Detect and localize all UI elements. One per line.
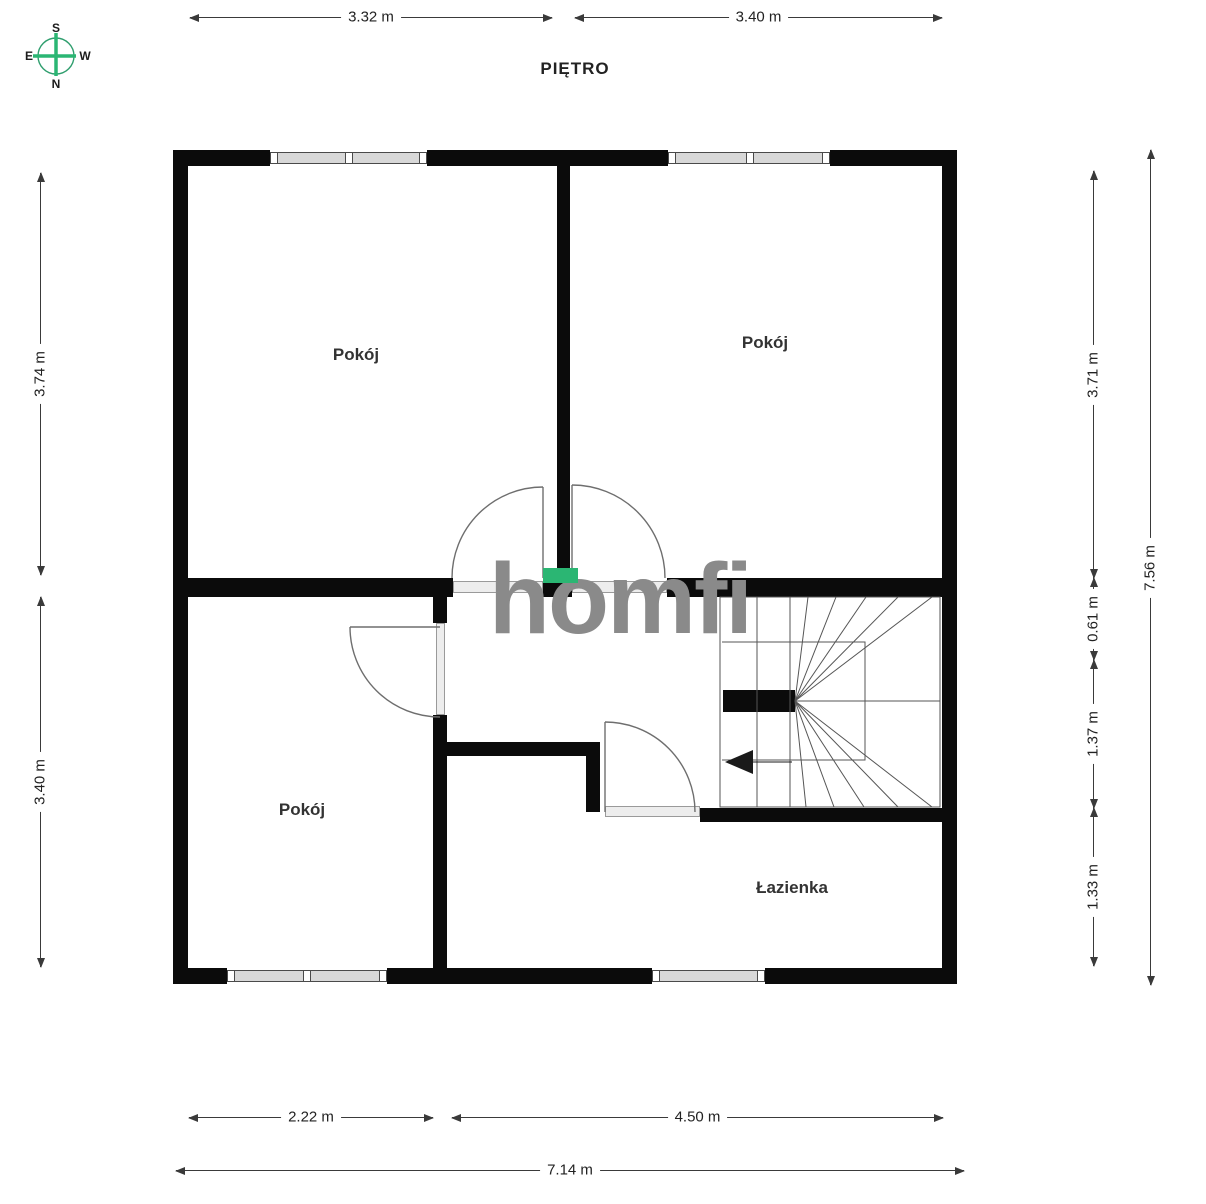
room-label-pokoj-bottom-left: Pokój xyxy=(279,800,325,820)
arrowhead-up-icon xyxy=(37,172,45,182)
dimension-bottom-2: 4.50 m xyxy=(452,1117,943,1118)
wall-below-stairs xyxy=(700,808,942,822)
window-mullion xyxy=(419,152,427,164)
arrowhead-down-icon xyxy=(1147,976,1155,986)
window-bottom-right xyxy=(652,970,765,982)
arrowhead-right-icon xyxy=(933,14,943,22)
dimension-left-2: 3.40 m xyxy=(40,597,41,967)
arrowhead-left-icon xyxy=(175,1167,185,1175)
arrowhead-down-icon xyxy=(37,958,45,968)
wall-segment-bottom-a xyxy=(173,968,227,984)
wall-segment-top-c xyxy=(830,150,957,166)
wall-segment-bottom-b xyxy=(387,968,652,984)
compass-label-left: E xyxy=(25,49,33,63)
compass-label-right: W xyxy=(79,49,90,63)
wall-center-vertical xyxy=(557,166,570,578)
window-mullion xyxy=(668,152,676,164)
room-label-pokoj-top-right: Pokój xyxy=(742,333,788,353)
arrowhead-up-icon xyxy=(1090,807,1098,817)
dimension-bottom-1: 2.22 m xyxy=(189,1117,433,1118)
room-label-lazienka: Łazienka xyxy=(756,878,828,898)
dimension-right-4: 1.33 m xyxy=(1093,808,1094,966)
dimension-label: 2.22 m xyxy=(281,1109,341,1128)
dimension-right-2: 0.61 m xyxy=(1093,578,1094,660)
dimension-label: 1.37 m xyxy=(1085,704,1104,764)
arrowhead-left-icon xyxy=(574,14,584,22)
arrowhead-up-icon xyxy=(1090,577,1098,587)
arrowhead-right-icon xyxy=(424,1114,434,1122)
wall-segment-top-b xyxy=(427,150,668,166)
wall-exterior-left xyxy=(173,150,188,984)
dimension-right-1: 3.71 m xyxy=(1093,171,1094,578)
dimension-left-1: 3.74 m xyxy=(40,173,41,575)
door-threshold-lower-room xyxy=(436,623,445,715)
dimension-label: 7.14 m xyxy=(540,1162,600,1181)
window-mullion xyxy=(822,152,830,164)
wall-hall-vertical-a xyxy=(433,597,447,623)
stairs-direction-arrow-icon xyxy=(725,750,753,774)
door-arc xyxy=(605,722,695,812)
compass-label-top: S xyxy=(52,21,60,35)
arrowhead-down-icon xyxy=(1090,957,1098,967)
arrowhead-left-icon xyxy=(451,1114,461,1122)
window-mullion xyxy=(379,970,387,982)
dimension-label: 1.33 m xyxy=(1085,857,1104,917)
door-threshold-bathroom xyxy=(605,806,700,817)
wall-bathroom-horizontal xyxy=(433,742,600,756)
compass-rose xyxy=(0,0,120,120)
window-mullion xyxy=(270,152,278,164)
stairs-landing-wall xyxy=(723,690,795,712)
dimension-top-1: 3.32 m xyxy=(190,17,552,18)
dimension-label: 3.32 m xyxy=(341,9,401,28)
wall-bathroom-vertical xyxy=(586,742,600,812)
dimension-bottom-total: 7.14 m xyxy=(176,1170,964,1171)
compass-circle xyxy=(38,38,74,74)
arrowhead-down-icon xyxy=(37,566,45,576)
arrowhead-right-icon xyxy=(934,1114,944,1122)
compass-label-bottom: N xyxy=(52,77,61,91)
arrowhead-up-icon xyxy=(1147,149,1155,159)
dimension-label: 3.74 m xyxy=(32,344,51,404)
window-mullion xyxy=(227,970,235,982)
floor-plan-page: S N E W PIĘTRO xyxy=(0,0,1206,1204)
arrowhead-up-icon xyxy=(37,596,45,606)
arrowhead-up-icon xyxy=(1090,659,1098,669)
window-mullion xyxy=(303,970,311,982)
window-mullion xyxy=(345,152,353,164)
wall-exterior-right xyxy=(942,150,957,984)
arrowhead-right-icon xyxy=(955,1167,965,1175)
dimension-right-total: 7.56 m xyxy=(1150,150,1151,985)
wall-middle-a xyxy=(188,578,453,597)
window-mullion xyxy=(757,970,765,982)
arrowhead-up-icon xyxy=(1090,170,1098,180)
dimension-label: 3.40 m xyxy=(729,9,789,28)
dimension-label: 3.40 m xyxy=(32,752,51,812)
door-arc xyxy=(350,627,440,717)
dimension-top-2: 3.40 m xyxy=(575,17,942,18)
watermark-accent-bar xyxy=(543,568,578,583)
dimension-label: 0.61 m xyxy=(1085,589,1104,649)
wall-segment-bottom-c xyxy=(765,968,957,984)
dimension-label: 7.56 m xyxy=(1142,538,1161,598)
arrowhead-left-icon xyxy=(189,14,199,22)
dimension-right-3: 1.37 m xyxy=(1093,660,1094,808)
arrowhead-left-icon xyxy=(188,1114,198,1122)
dimension-label: 3.71 m xyxy=(1085,345,1104,405)
page-title: PIĘTRO xyxy=(540,59,609,79)
dimension-label: 4.50 m xyxy=(668,1109,728,1128)
window-mullion xyxy=(652,970,660,982)
arrowhead-right-icon xyxy=(543,14,553,22)
watermark-logo: homfi xyxy=(489,549,751,649)
room-label-pokoj-top-left: Pokój xyxy=(333,345,379,365)
stair-winder-treads xyxy=(795,597,940,807)
window-mullion xyxy=(746,152,754,164)
